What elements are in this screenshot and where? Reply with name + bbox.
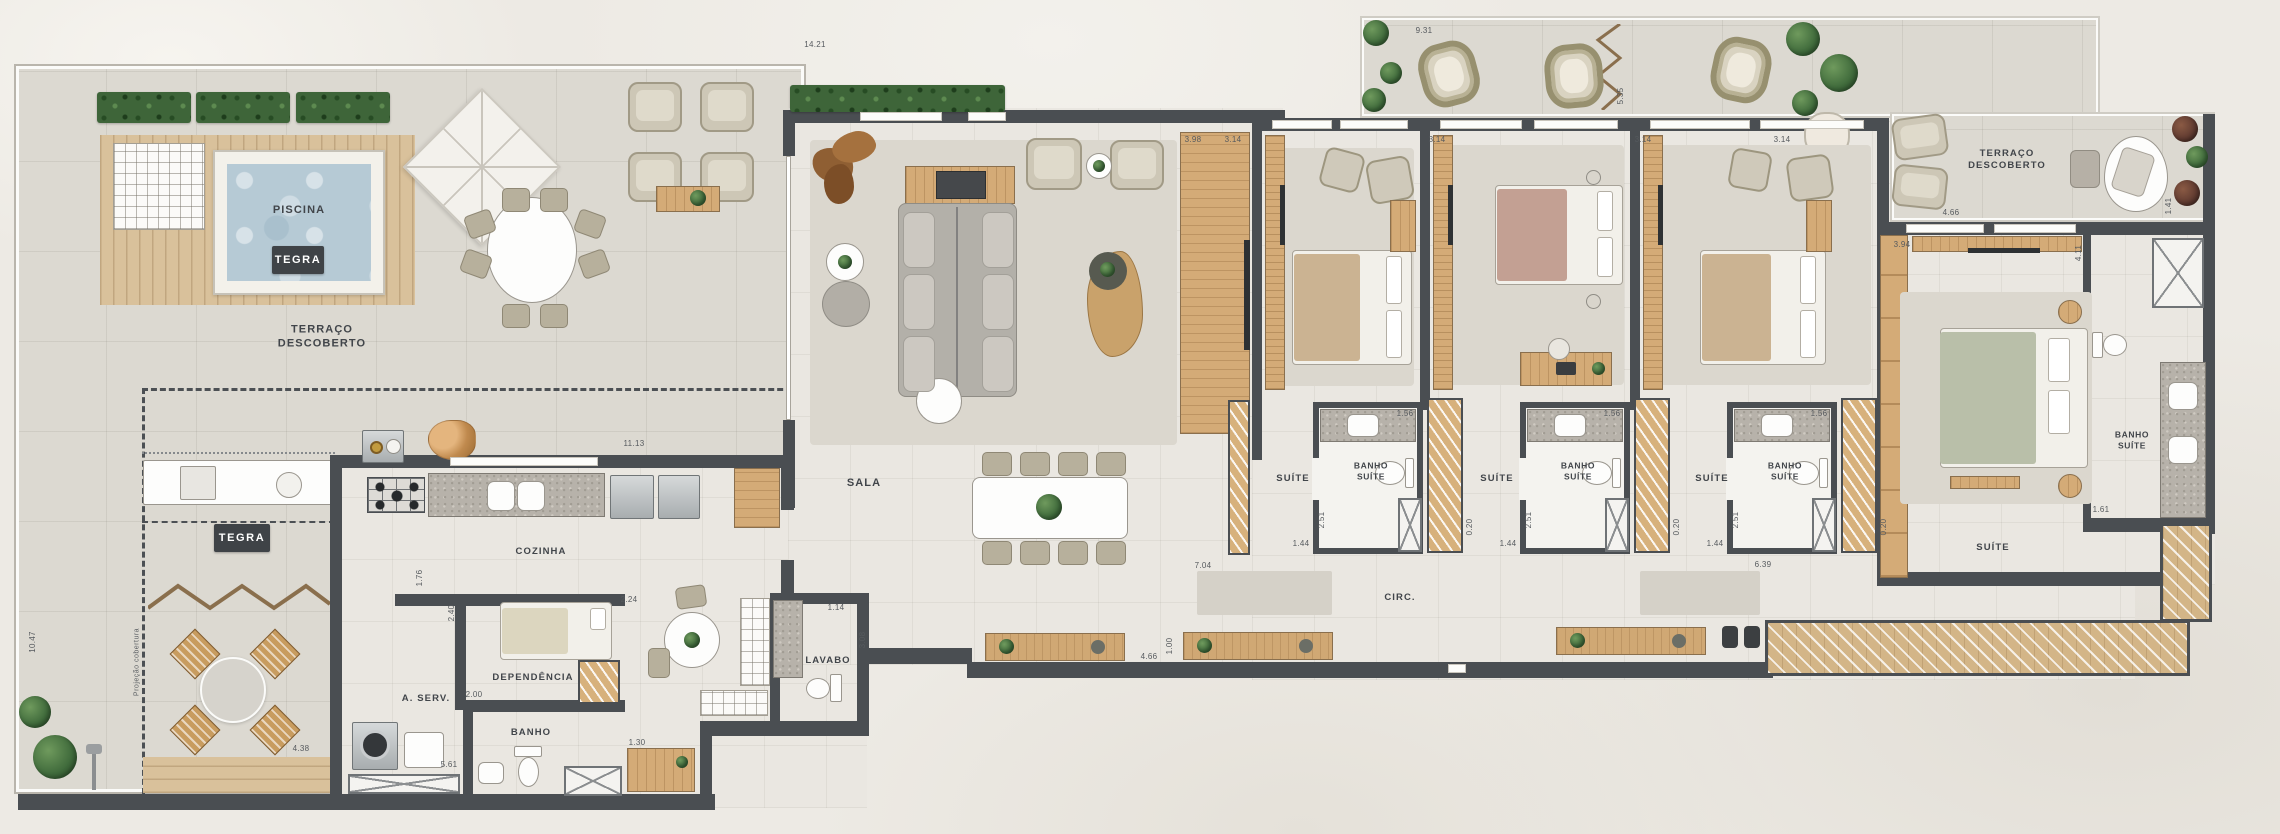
dimension-label: 5.35 (1616, 88, 1626, 105)
dimension-label: 1.44 (1707, 539, 1724, 549)
room-label-piscina: PISCINA (273, 204, 325, 218)
room-label-banho-suite: BANHO SUÍTE (2105, 429, 2159, 450)
dimension-label: 0.20 (1465, 519, 1475, 536)
dimension-label: 1.56 (1604, 409, 1621, 419)
pillow (1597, 191, 1613, 231)
wall (1252, 123, 1262, 460)
plant (1362, 88, 1386, 112)
suite-dresser (1806, 200, 1832, 252)
dimension-label: 3.94 (1894, 240, 1911, 250)
palm-plant (1792, 90, 1818, 116)
suite-tv (1280, 185, 1285, 245)
plant (19, 696, 51, 728)
dependencia-wardrobe (578, 660, 620, 704)
terrace-armchair (700, 82, 754, 132)
tegra-logo-terrace: TEGRA (214, 524, 270, 552)
stool (1722, 626, 1738, 648)
sofa-cushion (982, 274, 1014, 330)
suite-tv-panel (1643, 135, 1663, 390)
pillow (1597, 237, 1613, 277)
window (1760, 120, 1864, 129)
pillow (1800, 310, 1816, 358)
outdoor-shower-head (86, 744, 102, 754)
master-blanket (1940, 332, 2036, 464)
corridor-mat (1197, 571, 1332, 615)
wall (967, 662, 1773, 678)
outdoor-dining-chair (502, 188, 530, 212)
console-plant (1570, 633, 1585, 648)
plant (2186, 146, 2208, 168)
breakfast-bench (700, 690, 768, 716)
dining-chair (1058, 541, 1088, 565)
side-table-plant (838, 255, 852, 269)
wall (781, 455, 794, 510)
dimension-label: 14.21 (804, 40, 826, 50)
wall (857, 593, 869, 736)
plant (1380, 62, 1402, 84)
pillow (590, 608, 606, 630)
wall (700, 721, 869, 736)
hedge (790, 85, 1005, 112)
dimension-label: 3.14 (1774, 135, 1791, 145)
dimension-label: 4.38 (293, 744, 310, 754)
window (1534, 120, 1618, 129)
dimension-label: 4.66 (1141, 652, 1158, 662)
console-bowl (1672, 634, 1686, 648)
dimension-label: 2.40 (447, 605, 457, 622)
bath-door (1312, 458, 1320, 500)
room-label-terraco-descoberto-right: TERRAÇO DESCOBERTO (1959, 148, 2055, 172)
bbq-bowl (386, 439, 401, 454)
pouf (1365, 155, 1416, 206)
tegra-logo-pool: TEGRA (272, 246, 324, 274)
dimension-label: 3.14 (1429, 135, 1446, 145)
master-sink (2168, 436, 2198, 464)
cat (428, 420, 476, 460)
master-shower (2152, 238, 2204, 308)
suite-tv-panel (1433, 135, 1453, 390)
bench-plant (690, 190, 706, 206)
cabinet-plant (676, 756, 688, 768)
master-toilet-tank (2092, 332, 2103, 358)
dining-plant (1036, 494, 1062, 520)
dimension-label: 3.98 (1185, 135, 1202, 145)
papasan-chair (1542, 42, 1605, 111)
plant (2172, 116, 2198, 142)
suite-dresser (1390, 200, 1416, 252)
wall (1630, 123, 1640, 410)
tegra-logo-text: TEGRA (275, 254, 322, 266)
nightstand-lamp (1586, 294, 1601, 309)
bath-shower (1398, 498, 1422, 552)
dimension-label: 2.00 (466, 690, 483, 700)
sofa-cushion (982, 212, 1014, 268)
sofa-cushion (903, 336, 935, 392)
outdoor-dining-table (487, 197, 577, 303)
dimension-label: 1.76 (415, 570, 425, 587)
dimension-label: 2.51 (1524, 512, 1534, 529)
room-label-circ: CIRC. (1384, 592, 1415, 604)
floor-plan-canvas: TEGRA TEGRA (0, 0, 2280, 834)
hedge (97, 92, 191, 123)
terrace-armchair (628, 82, 682, 132)
dimension-label: 2.51 (1731, 512, 1741, 529)
suite-wardrobe (1427, 398, 1463, 553)
stool (1744, 626, 1760, 648)
washer-door (360, 730, 390, 760)
dimension-label: 6.39 (1755, 560, 1772, 570)
wall (783, 110, 795, 156)
dining-chair (1096, 452, 1126, 476)
bath-sink (1347, 414, 1379, 437)
glass-wall (786, 156, 791, 420)
window (1994, 224, 2076, 233)
wall (860, 648, 972, 664)
plant (1363, 20, 1389, 46)
deck-pergola (2160, 523, 2212, 622)
window (860, 112, 942, 121)
outdoor-dining-chair (502, 304, 530, 328)
suite-tv (1658, 185, 1663, 245)
projection-line-h (142, 388, 810, 391)
dining-chair (1020, 541, 1050, 565)
dining-chair (982, 541, 1012, 565)
window (1340, 120, 1408, 129)
room-label-banho: BANHO (511, 727, 551, 739)
suite-wardrobe (1634, 398, 1670, 553)
suite-blanket (1294, 254, 1360, 361)
kitchen-sink (487, 481, 515, 511)
bed-bench (1950, 476, 2020, 489)
projection-line-dotted (142, 452, 335, 454)
banho-toilet-tank (514, 746, 542, 757)
window (1440, 120, 1522, 129)
lavabo-counter (773, 600, 803, 678)
pillow (2048, 338, 2070, 382)
banho-shower (564, 766, 622, 796)
dependencia-blanket (502, 608, 568, 654)
nightstand (2058, 300, 2082, 324)
dimension-label: 9.31 (1416, 26, 1433, 36)
window (968, 112, 1006, 121)
bath-toilet-tank (1612, 458, 1621, 488)
dimension-label: 3.14 (1225, 135, 1242, 145)
pillow (2048, 390, 2070, 434)
dimension-label: 1.14 (828, 603, 845, 613)
plant (33, 735, 77, 779)
hall-cabinet (1228, 400, 1250, 555)
master-sink (2168, 382, 2198, 410)
pouf (1785, 153, 1835, 203)
dimension-label: 2.24 (621, 595, 638, 605)
dimension-label: 1.56 (1811, 409, 1828, 419)
dining-chair (1020, 452, 1050, 476)
console-plant (999, 639, 1014, 654)
hedge (296, 92, 390, 123)
console-plant (1197, 638, 1212, 653)
sofa-cushion (903, 212, 935, 268)
outdoor-kitchen-counter (143, 460, 332, 505)
outdoor-basin (276, 472, 302, 498)
dining-chair (1096, 541, 1126, 565)
bath-sink (1761, 414, 1793, 437)
wall (781, 560, 794, 605)
dining-chair (1058, 452, 1088, 476)
banho-toilet (518, 757, 539, 787)
dimension-label: 2.51 (1317, 512, 1327, 529)
tv-panel-screen (1244, 240, 1250, 350)
dimension-label: 0.20 (1879, 519, 1889, 536)
pouf (1727, 147, 1773, 193)
window (1650, 120, 1750, 129)
window (1272, 120, 1332, 129)
service-sink (404, 732, 444, 768)
bath-door (1519, 458, 1527, 500)
sofa-seam (956, 207, 958, 393)
room-label-dependencia: DEPENDÊNCIA (492, 672, 573, 684)
dimension-label: 5.61 (441, 760, 458, 770)
room-label-banho-suite: BANHO SUÍTE (1551, 460, 1605, 481)
dimension-label: 0.20 (1672, 519, 1682, 536)
oven-column (658, 475, 700, 519)
desk-plant (1592, 362, 1605, 375)
suite-blanket (1497, 189, 1567, 281)
room-label-banho-suite: BANHO SUÍTE (1344, 460, 1398, 481)
master-toilet (2103, 334, 2127, 356)
wall (330, 455, 342, 808)
room-label-cozinha: COZINHA (516, 546, 567, 558)
bath-toilet-tank (1405, 458, 1414, 488)
pillow (1386, 256, 1402, 304)
wall (18, 794, 715, 810)
dimension-label: 4.11 (2074, 245, 2084, 261)
terrace-side-table (2070, 150, 2100, 188)
dimension-label: 1.44 (1293, 539, 1310, 549)
window (450, 457, 598, 466)
hedge (196, 92, 290, 123)
laptop (1556, 362, 1576, 375)
deck-strip (143, 757, 332, 793)
suite-wardrobe (1841, 398, 1877, 553)
master-tv (1968, 248, 2040, 253)
lavabo-toilet-tank (830, 674, 842, 702)
breakfast-chair (675, 584, 708, 610)
room-label-terraco-descoberto-left: TERRAÇO DESCOBERTO (274, 323, 370, 351)
terrace-round-table (200, 657, 266, 723)
desk-chair (1548, 338, 1570, 360)
window (1448, 664, 1466, 673)
kitchen-sink (517, 481, 545, 511)
dimension-label: 3.08 (858, 632, 868, 649)
suite-tv-panel (1265, 135, 1285, 390)
room-label-suite: SUÍTE (1276, 473, 1309, 485)
tv-art (936, 171, 986, 199)
tray-plant (1100, 262, 1115, 277)
bbq-burner (370, 441, 383, 454)
room-label-suite: SUÍTE (1976, 542, 2009, 554)
armchair (1026, 138, 1082, 190)
pillow (1800, 256, 1816, 304)
dining-chair (982, 452, 1012, 476)
ottoman (822, 281, 870, 327)
dimension-label: 1.30 (629, 738, 646, 748)
sala-sideboard (1180, 132, 1250, 434)
deck-pergola (1765, 620, 2190, 676)
cooktop (367, 477, 425, 513)
armchair (1110, 140, 1164, 190)
room-label-suite: SUÍTE (1695, 473, 1728, 485)
sofa-cushion (903, 274, 935, 330)
table-plant (684, 632, 700, 648)
dimension-label: 1.56 (1397, 409, 1414, 419)
dimension-label: 7.04 (1195, 561, 1212, 571)
dimension-label: 1.44 (1500, 539, 1517, 549)
bath-sink (1554, 414, 1586, 437)
plant-bench (656, 186, 720, 212)
room-label-lavabo: LAVABO (805, 655, 850, 667)
pillow (1386, 310, 1402, 358)
bath-toilet-tank (1819, 458, 1828, 488)
wall (700, 721, 712, 810)
lounge-chair (1890, 112, 1949, 161)
bath-shower (1812, 498, 1836, 552)
dimension-label: 1.41 (2164, 198, 2174, 215)
dimension-label: 11.13 (624, 439, 645, 449)
outdoor-dining-chair (540, 188, 568, 212)
lounge-chair (1891, 163, 1949, 210)
annotation-projecao: Projeção cobertura (134, 628, 143, 696)
room-label-suite: SUÍTE (1480, 473, 1513, 485)
palm-plant (1786, 22, 1820, 56)
nightstand (2058, 474, 2082, 498)
room-label-sala: SALA (847, 477, 881, 491)
decor-branch (824, 164, 854, 204)
bar-cabinet (627, 748, 695, 792)
room-label-banho-suite: BANHO SUÍTE (1758, 460, 1812, 481)
palm-plant (1820, 54, 1858, 92)
corridor-mat (1640, 571, 1760, 615)
dimension-label: 4.66 (1943, 208, 1960, 218)
plant (2174, 180, 2200, 206)
bath-shower (1605, 498, 1629, 552)
wall (463, 700, 473, 800)
banho-sink (478, 762, 504, 784)
pantry-lattice-cabinet (740, 598, 770, 686)
pergola-lattice (113, 143, 205, 230)
dimension-label: 1.00 (1165, 638, 1175, 655)
dimension-label: 3.14 (1635, 135, 1652, 145)
projection-line-v (142, 388, 145, 794)
zigzag-screen (148, 578, 330, 616)
side-plant (1093, 160, 1105, 172)
console-bowl (1091, 640, 1105, 654)
wall (1877, 572, 2167, 586)
kitchen-cabinet (734, 468, 780, 528)
refrigerator (610, 475, 654, 519)
wall (1420, 123, 1430, 410)
projection-line-h2 (142, 521, 335, 523)
sofa-cushion (982, 336, 1014, 392)
dimension-label: 10.47 (28, 631, 38, 653)
console-bowl (1299, 639, 1313, 653)
window (1906, 224, 1984, 233)
outdoor-dining-chair (540, 304, 568, 328)
lavabo-toilet (806, 678, 830, 699)
breakfast-chair (648, 648, 670, 678)
outdoor-sink (180, 466, 216, 500)
drying-rack (348, 774, 460, 794)
suite-blanket (1702, 254, 1771, 361)
tegra-logo-text: TEGRA (219, 532, 266, 544)
suite-tv (1448, 185, 1453, 245)
nightstand-lamp (1586, 170, 1601, 185)
dimension-label: 1.61 (2093, 505, 2110, 515)
room-label-aserv: A. SERV. (402, 693, 450, 705)
